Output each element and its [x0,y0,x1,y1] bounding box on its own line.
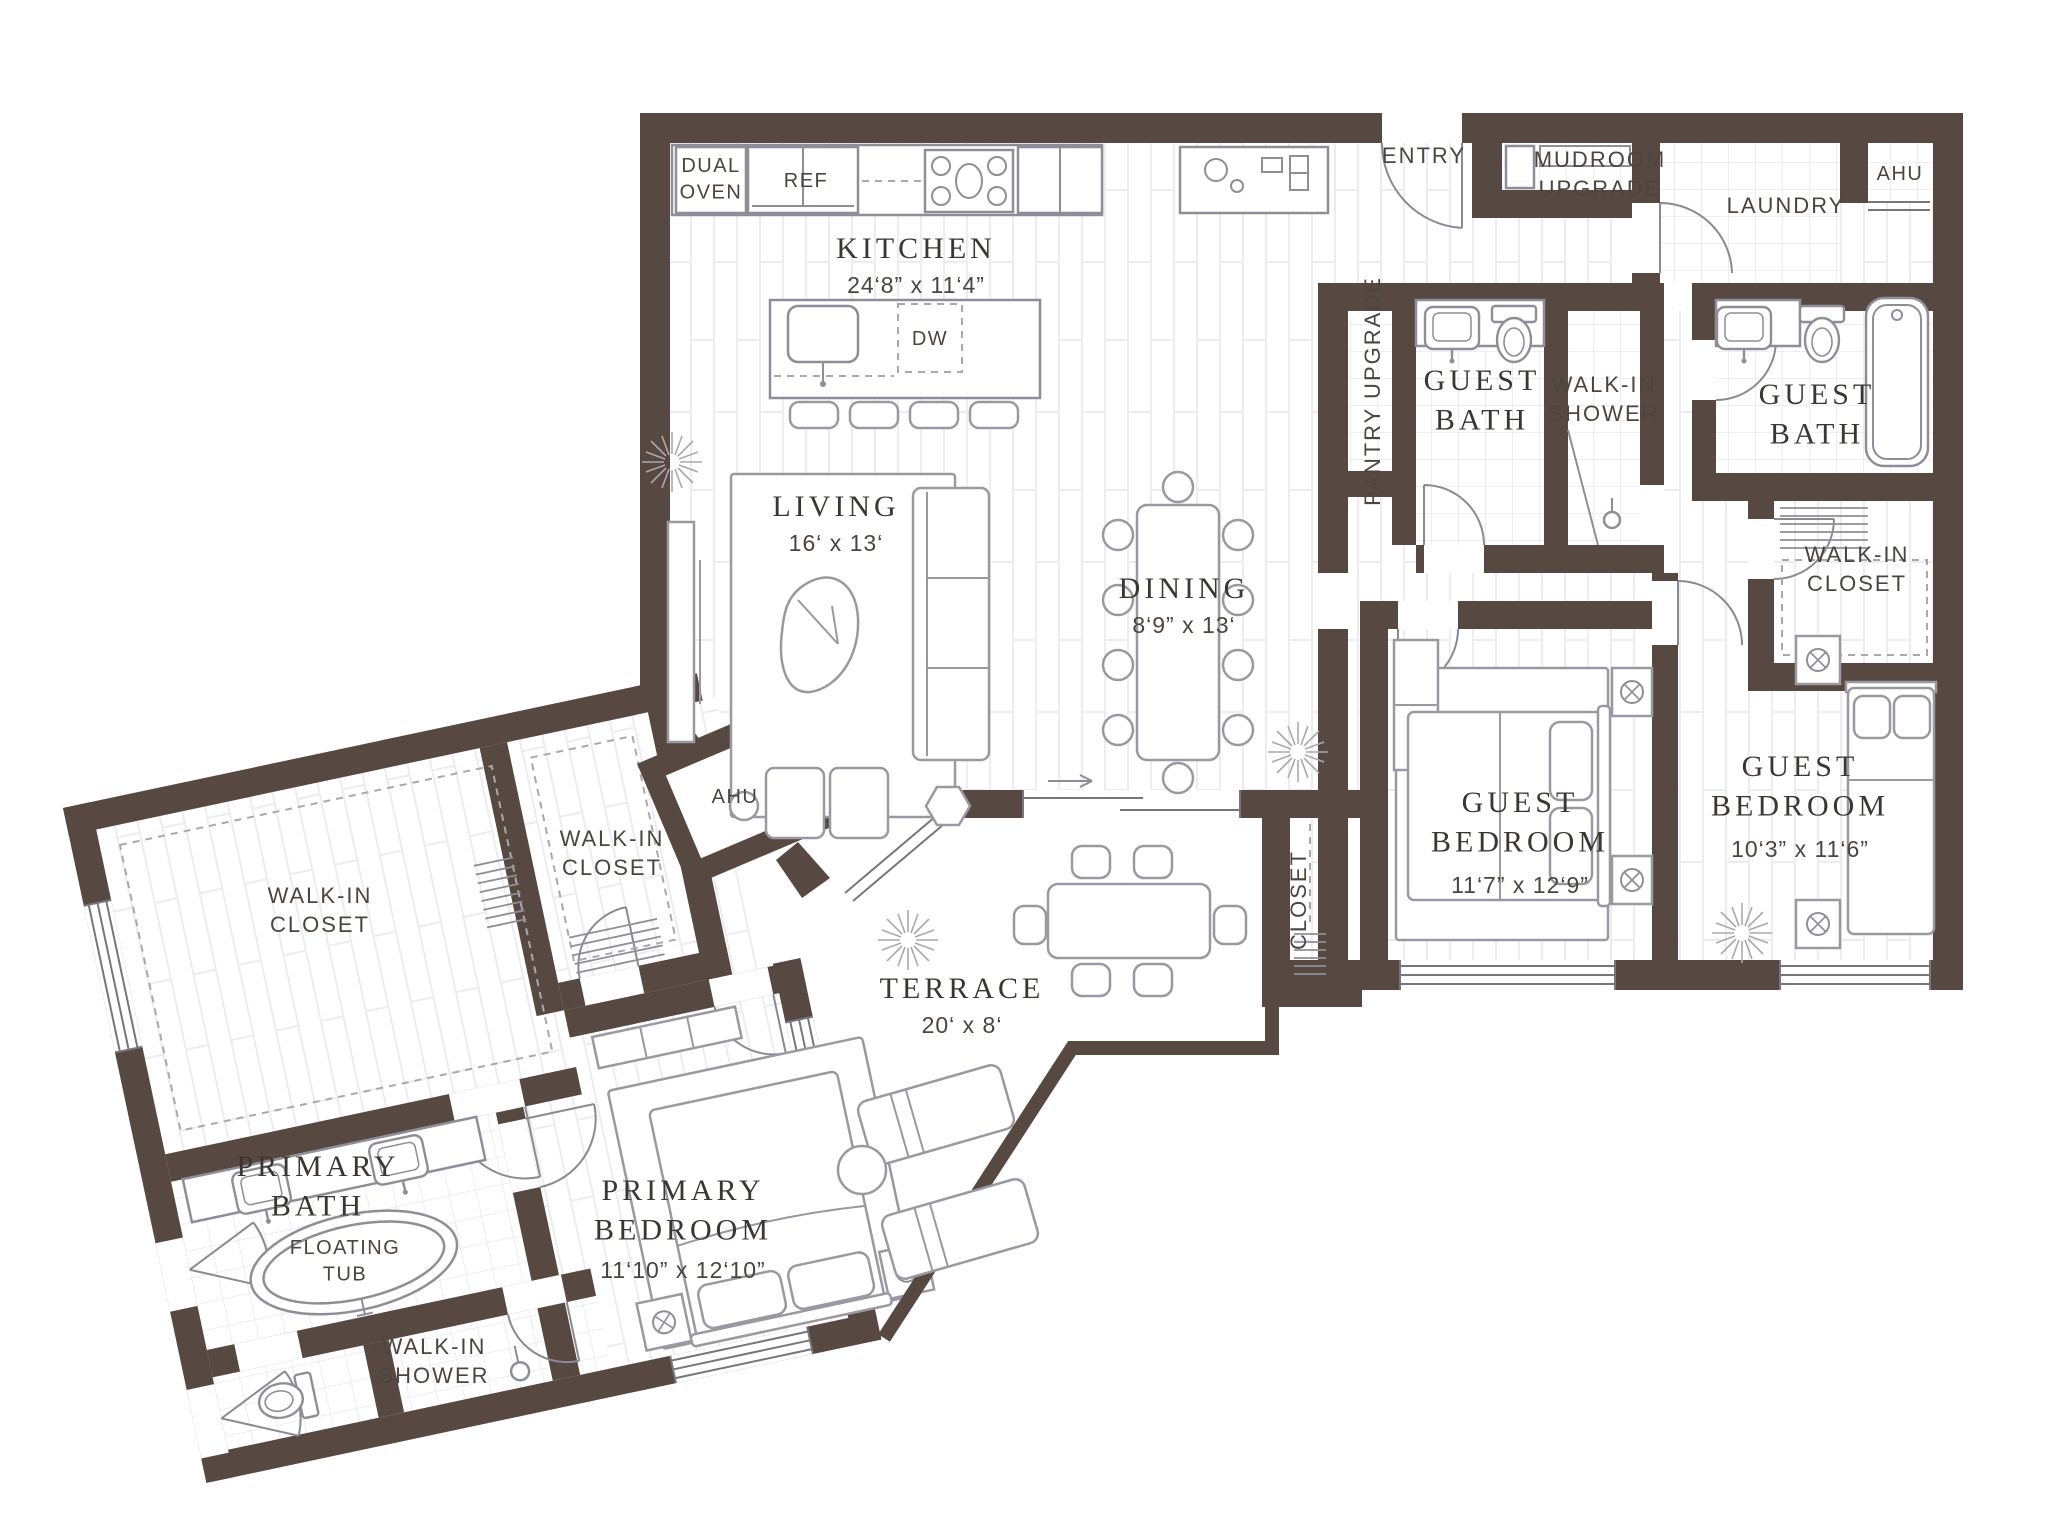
ottoman [830,768,888,838]
dw-label: DW [912,328,948,350]
kitchen-dims: 24‘8” x 11‘4” [847,272,985,298]
kitchen-label: KITCHEN [836,232,996,265]
primary-bedroom-dims: 11‘10” x 12‘10” [600,1257,765,1283]
plant-icon [878,910,938,970]
pantry-label: PANTRY UPGRADE [1360,276,1385,506]
cooktop [925,150,1013,212]
terrace-label: TERRACE [880,972,1045,1005]
sofa [913,488,989,760]
terrace-edge [884,1007,1272,1338]
desk-nook [1180,147,1328,213]
floor-plan-drawing: KITCHEN 24‘8” x 11‘4” LIVING 16‘ x 13‘ D… [0,0,2048,1517]
lounger [856,1063,1016,1167]
ottoman [766,768,824,838]
hall-closet-label: CLOSET [1286,850,1311,950]
living-label: LIVING [772,490,899,523]
round-table [838,1146,886,1194]
stool [970,402,1018,428]
laundry-label: LAUNDRY [1727,193,1846,218]
lounger [880,1177,1040,1281]
terrace-furniture [838,846,1246,1281]
floor-plan-page: KITCHEN 24‘8” x 11‘4” LIVING 16‘ x 13‘ D… [0,0,2048,1517]
stool [850,402,898,428]
dining-label: DINING [1119,572,1250,605]
ahu-suite-label: AHU [712,786,759,808]
living-dims: 16‘ x 13‘ [789,530,884,556]
ref-label: REF [784,170,829,192]
terrace-dims: 20‘ x 8‘ [922,1012,1003,1038]
entry-label: ENTRY [1382,143,1466,168]
dining-dims: 8‘9” x 13‘ [1132,612,1235,638]
hex-side-table [926,787,970,825]
stool [910,402,958,428]
guest-bedroom-1-dims: 11‘7” x 12‘9” [1451,872,1589,898]
ahu-entry-label: AHU [1877,163,1924,185]
stool [790,402,838,428]
media-console [668,522,700,742]
guest-bedroom-2-dims: 10‘3” x 11‘6” [1731,836,1869,862]
